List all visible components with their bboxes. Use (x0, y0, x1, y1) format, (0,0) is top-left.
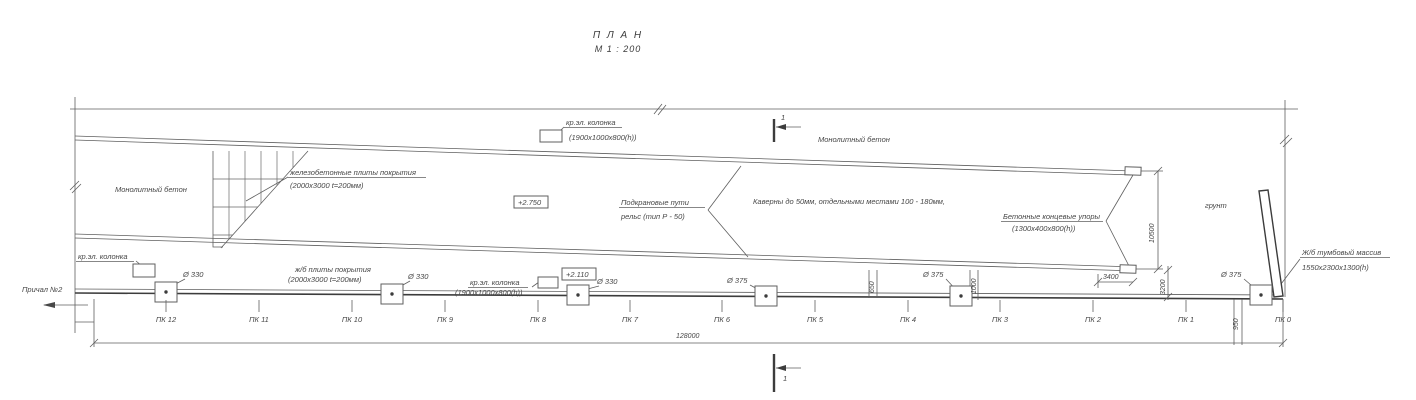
plates-grid-left-edge (213, 151, 223, 247)
end-stop-bottom-rect (1120, 265, 1136, 274)
station-label-ПК 11: ПК 11 (249, 315, 269, 324)
drawing-sheet: П Л А Н М 1 : 200 (0, 0, 1416, 400)
caverns-note: Каверны до 50мм, отдельными местами 100 … (753, 197, 945, 206)
dim-950-text: 950 (1233, 318, 1240, 330)
end-stop-top-rect (1125, 167, 1141, 176)
section-mark-top (774, 119, 801, 142)
bollard-pk0-label: Ø 375 (1220, 270, 1242, 279)
station-label-ПК 1: ПК 1 (1178, 315, 1194, 324)
station-label-ПК 5: ПК 5 (807, 315, 824, 324)
end-stops-label: Бетонные концевые упоры (1003, 212, 1101, 221)
plates-grid-verticals (229, 148, 293, 250)
section-mark-top-arrow (776, 124, 786, 130)
crane-rail-bottom-outer (75, 238, 1136, 271)
drawing-scale: М 1 : 200 (595, 44, 642, 54)
elevation-2110: +2.110 (566, 270, 589, 279)
crane-column-bottommid-rect (538, 277, 558, 288)
crane-rails-label-line2: рельс (тип Р - 50) (620, 212, 685, 221)
elevation-2750: +2.750 (518, 198, 542, 207)
dim-128000-text: 128000 (676, 333, 699, 340)
break-mark-top (654, 104, 666, 115)
plan-drawing: П Л А Н М 1 : 200 (0, 0, 1416, 400)
bollard-pk6-5-label: Ø 375 (726, 276, 748, 285)
station-label-ПК 10: ПК 10 (342, 315, 363, 324)
bollard-pk6-5-dot (764, 294, 767, 297)
geometry-layer (43, 97, 1300, 392)
berth-label: Причал №2 (22, 285, 63, 294)
crane-column-bottommid-label: кр.эл. колонка (470, 278, 520, 287)
bollard-pk4-3-dot (959, 294, 962, 297)
station-label-ПК 8: ПК 8 (530, 315, 547, 324)
slabs-bottom-label: ж/б плиты покрытия (294, 265, 371, 274)
break-mark-left (70, 181, 81, 193)
berth-direction-arrow (43, 302, 88, 308)
station-label-ПК 7: ПК 7 (622, 315, 639, 324)
section-mark-bottom (774, 354, 801, 392)
section-mark-bottom-arrow (776, 365, 786, 371)
mooring-massif-size: 1550x2300x1300(h) (1302, 263, 1369, 272)
leader-precast-slabs (246, 177, 288, 201)
precast-slabs-size: (2000x3000 t=200мм) (290, 181, 364, 190)
station-label-ПК 4: ПК 4 (900, 315, 916, 324)
monolith-concrete-right-label: Монолитный бетон (818, 135, 890, 144)
leader-end-stops (1106, 175, 1133, 266)
station-label-ПК 6: ПК 6 (714, 315, 731, 324)
plates-grid-diagonal-edge (221, 151, 308, 248)
crane-column-top-rect (540, 130, 562, 142)
mooring-massif-label: Ж/б тумбовый массив (1301, 248, 1381, 257)
section-mark-top-number: 1 (781, 113, 785, 122)
crane-column-top-label: кр.эл. колонка (566, 118, 616, 127)
bollard-pk10-9-dot (390, 292, 393, 295)
station-label-ПК 2: ПК 2 (1085, 315, 1102, 324)
bollard-pk0-dot (1259, 293, 1262, 296)
crane-rails-label-line1: Подкрановые пути (621, 198, 690, 207)
drawing-title: П Л А Н (593, 30, 643, 41)
stations-layer: ПК 12ПК 11ПК 10ПК 9ПК 8ПК 7ПК 6ПК 5ПК 4П… (156, 300, 1292, 324)
dim-10500-text: 10500 (1149, 223, 1156, 243)
dim-3200-text: 3200 (1160, 279, 1167, 295)
bollard-pk10-9-label: Ø 330 (407, 272, 429, 281)
precast-plates-grid (210, 148, 310, 250)
crane-column-top-size: (1900x1000x800(h)) (569, 133, 637, 142)
bollard-pk8-7-label: Ø 330 (596, 277, 618, 286)
soil-label: грунт (1205, 201, 1227, 210)
crane-column-bottomleft-label: кр.эл. колонка (78, 252, 128, 261)
dim-650-text: 650 (869, 281, 876, 293)
dim-3400-text: 3400 (1103, 274, 1119, 281)
crane-rail-top-inner (75, 140, 1133, 175)
break-mark-right (1280, 135, 1292, 147)
crane-rail-bottom-inner (75, 234, 1136, 267)
dimensions-layer: 10500340032001000650950128000 (676, 223, 1240, 340)
leader-crane-rails (708, 166, 748, 257)
monolith-concrete-left-label: Монолитный бетон (115, 185, 187, 194)
bollard-pk12-label: Ø 330 (182, 270, 204, 279)
berth-arrow-head (43, 302, 55, 308)
station-label-ПК 3: ПК 3 (992, 315, 1009, 324)
bollard-pk12-dot (164, 290, 167, 293)
bollard-pk4-3-label: Ø 375 (922, 270, 944, 279)
precast-slabs-label: железобетонные плиты покрытия (289, 168, 416, 177)
mooring-massif-bar (1259, 190, 1283, 297)
section-mark-bottom-number: 1 (783, 374, 787, 383)
station-label-ПК 9: ПК 9 (437, 315, 454, 324)
dim-1000-text: 1000 (971, 278, 978, 294)
station-label-ПК 0: ПК 0 (1275, 315, 1292, 324)
crane-column-bottommid-size: (1900x1000x800(h)) (455, 288, 523, 297)
station-label-ПК 12: ПК 12 (156, 315, 177, 324)
bollard-pk8-7-dot (576, 293, 579, 296)
crane-column-bottomleft-rect (133, 264, 155, 277)
annotations-layer: кр.эл. колонка(1900x1000x800(h))Монолитн… (22, 113, 1390, 383)
slabs-bottom-size: (2000x3000 t=200мм) (288, 275, 362, 284)
end-stop-extension-lines (1136, 171, 1163, 269)
end-stops-size: (1300x400x800(h)) (1012, 224, 1076, 233)
